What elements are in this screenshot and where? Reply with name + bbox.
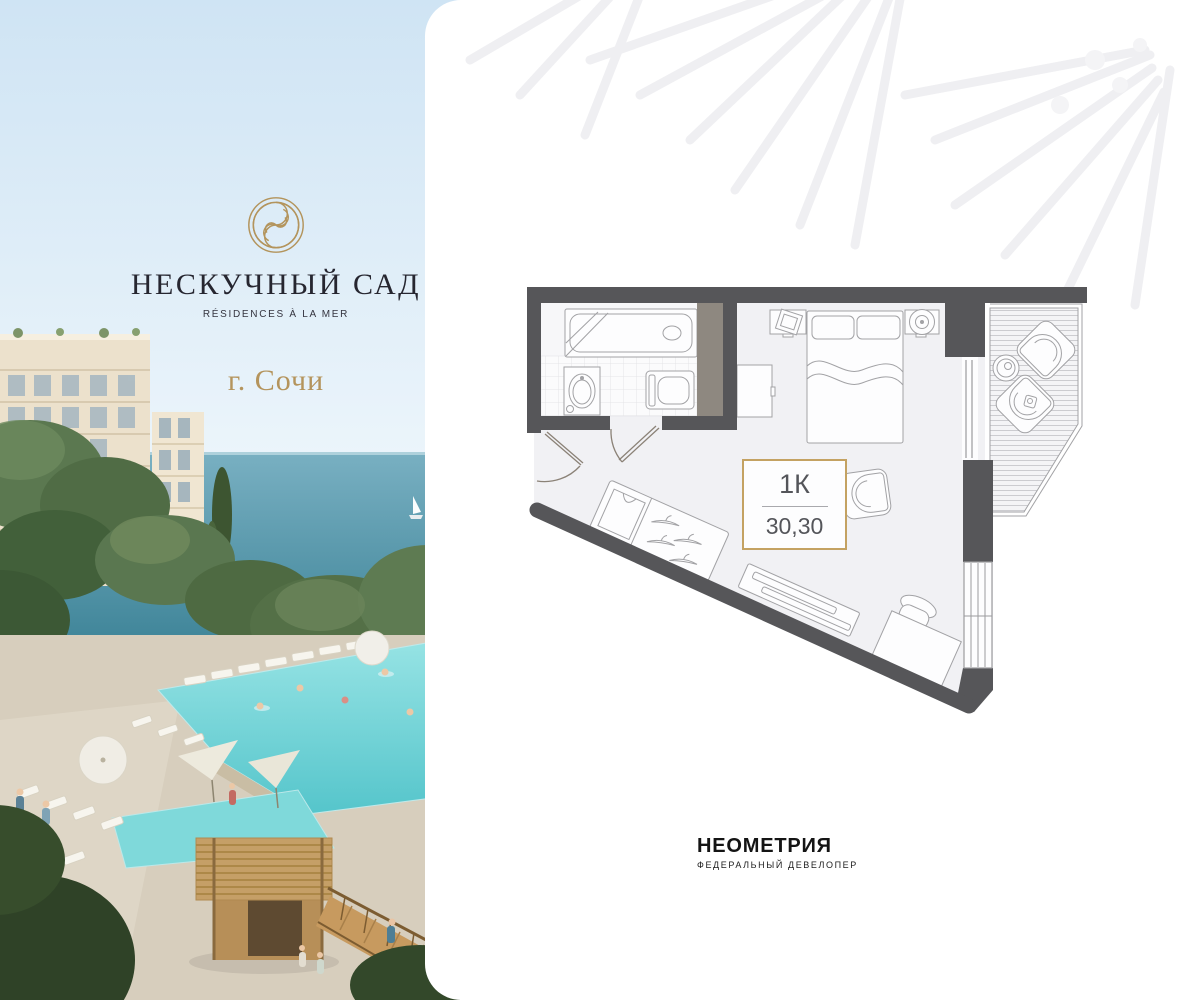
toilet (646, 371, 694, 409)
developer-name: НЕОМЕТРИЯ (697, 836, 858, 856)
project-tagline: RÉSIDENCES À LA MER (76, 309, 476, 320)
bathtub (565, 309, 697, 357)
plan-panel: 1К 30,30 НЕОМЕТРИЯ ФЕДЕРАЛЬНЫЙ ДЕВЕЛОПЕР (425, 0, 1200, 1000)
spiral-monogram-icon (247, 196, 305, 254)
sink (564, 367, 600, 415)
dresser (737, 365, 775, 417)
badge-divider (762, 506, 828, 507)
corner-window (964, 562, 992, 668)
project-city: г. Сочи (76, 364, 476, 398)
plan-area-value: 30,30 (766, 515, 824, 538)
bed (807, 311, 903, 443)
nightstand-left (770, 309, 806, 337)
balcony-window (962, 357, 978, 460)
balcony-table (993, 355, 1019, 381)
armchair (840, 468, 892, 520)
property-photo (0, 0, 460, 1000)
project-logo: НЕСКУЧНЫЙ САД RÉSIDENCES À LA MER г. Соч… (76, 196, 476, 398)
flat-card-page: НЕСКУЧНЫЙ САД RÉSIDENCES À LA MER г. Соч… (0, 0, 1200, 1000)
table-lamp (910, 310, 935, 335)
project-name: НЕСКУЧНЫЙ САД (76, 268, 476, 302)
developer-logo: НЕОМЕТРИЯ ФЕДЕРАЛЬНЫЙ ДЕВЕЛОПЕР (697, 836, 858, 870)
utility-shaft (697, 303, 723, 416)
plan-type-label: 1К (779, 471, 810, 498)
developer-subtitle: ФЕДЕРАЛЬНЫЙ ДЕВЕЛОПЕР (697, 861, 858, 870)
plan-info-badge: 1К 30,30 (742, 459, 847, 550)
